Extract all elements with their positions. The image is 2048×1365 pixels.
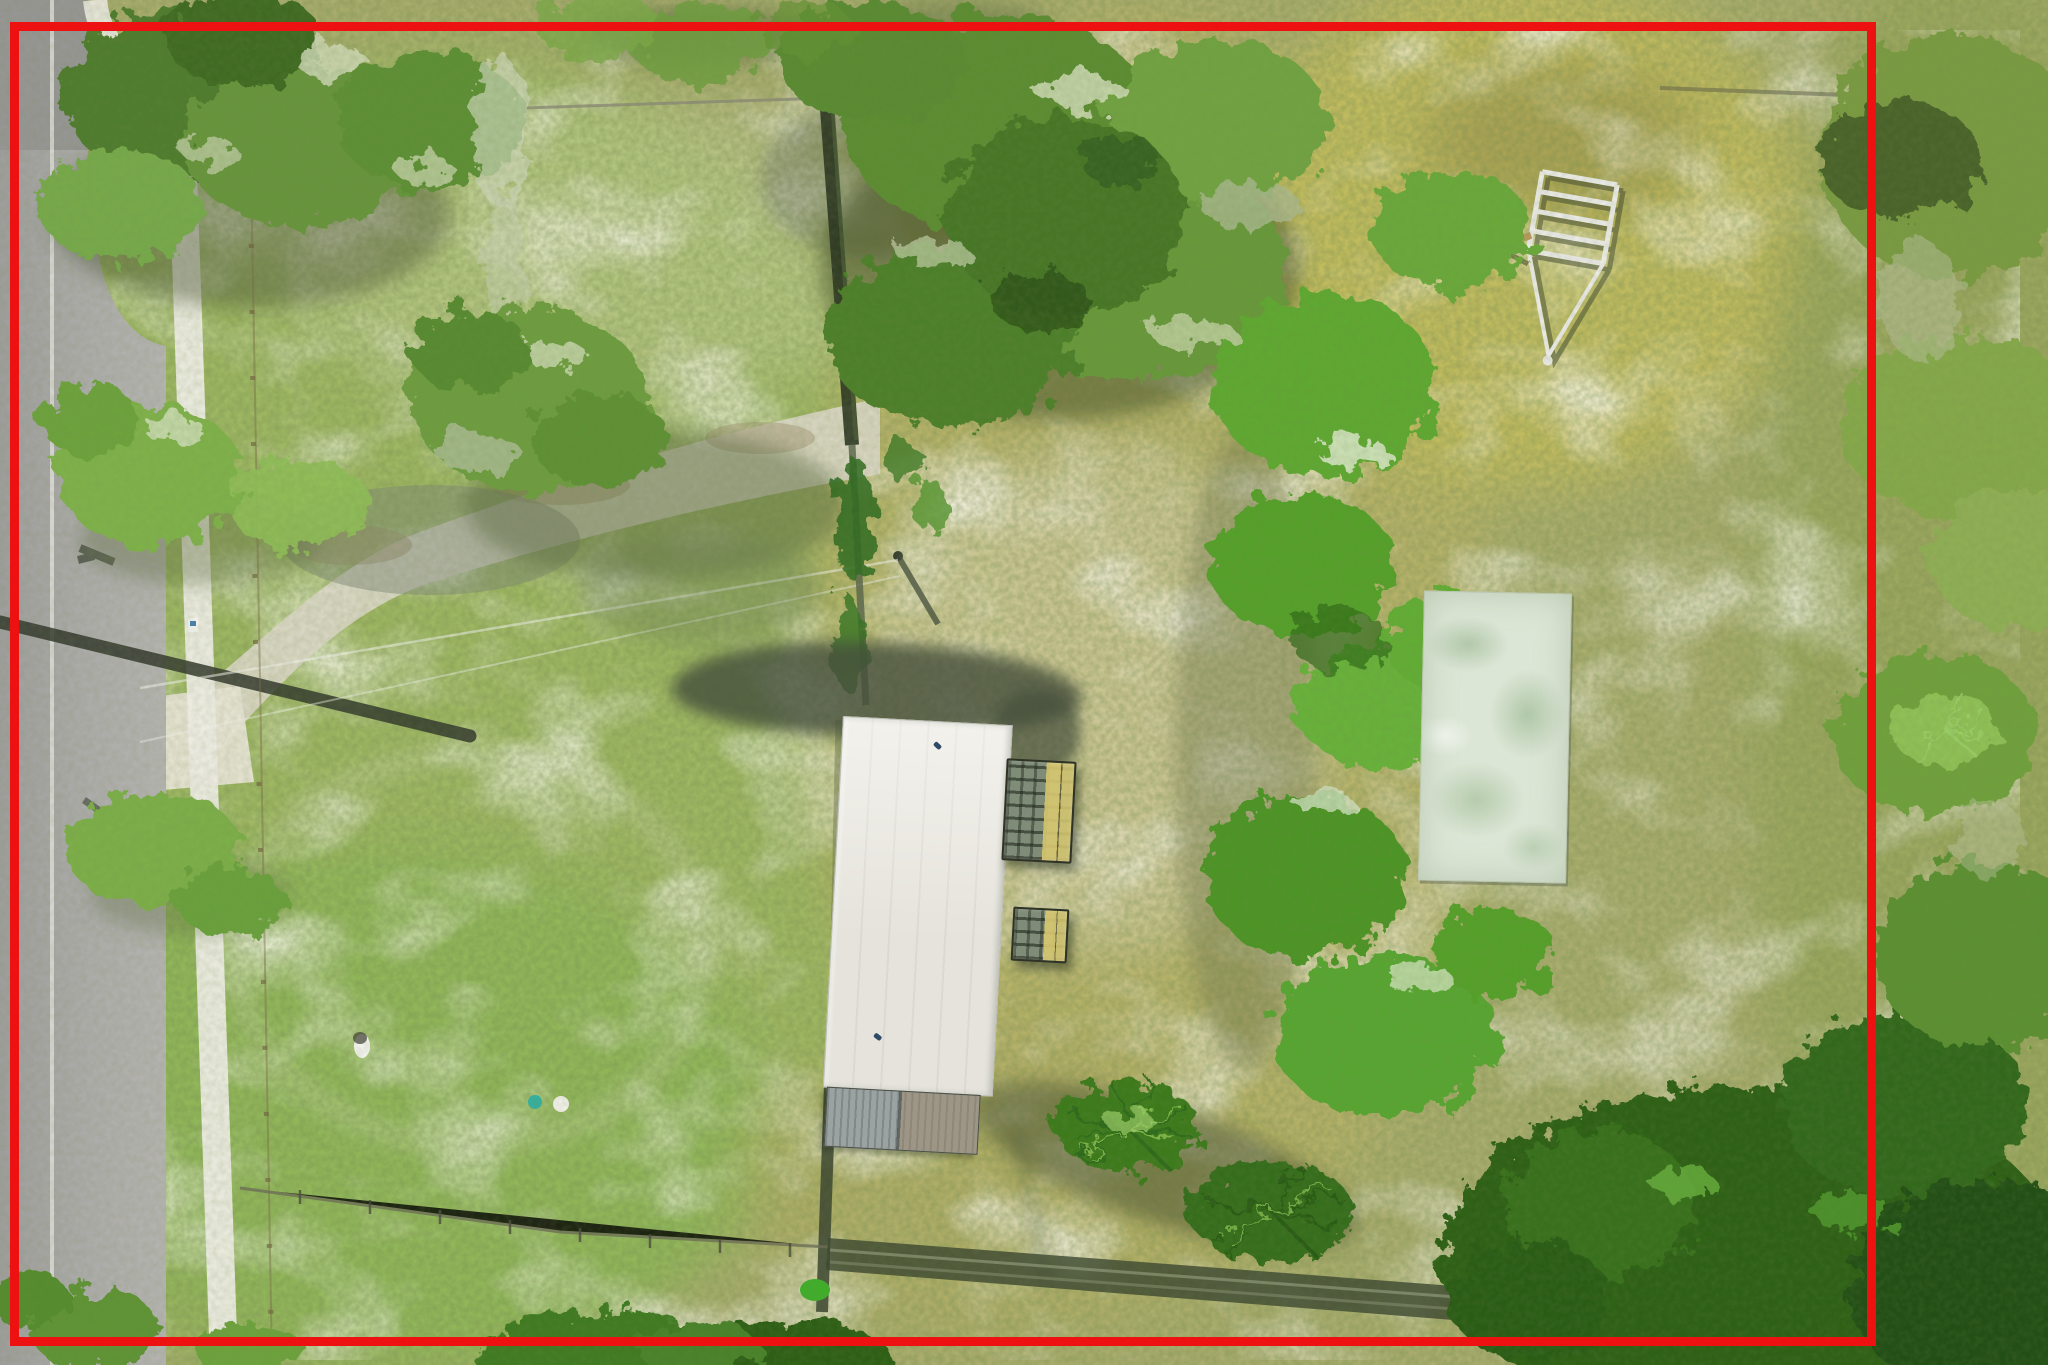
property-boundary: [10, 22, 1876, 1346]
aerial-photo: [0, 0, 2048, 1365]
